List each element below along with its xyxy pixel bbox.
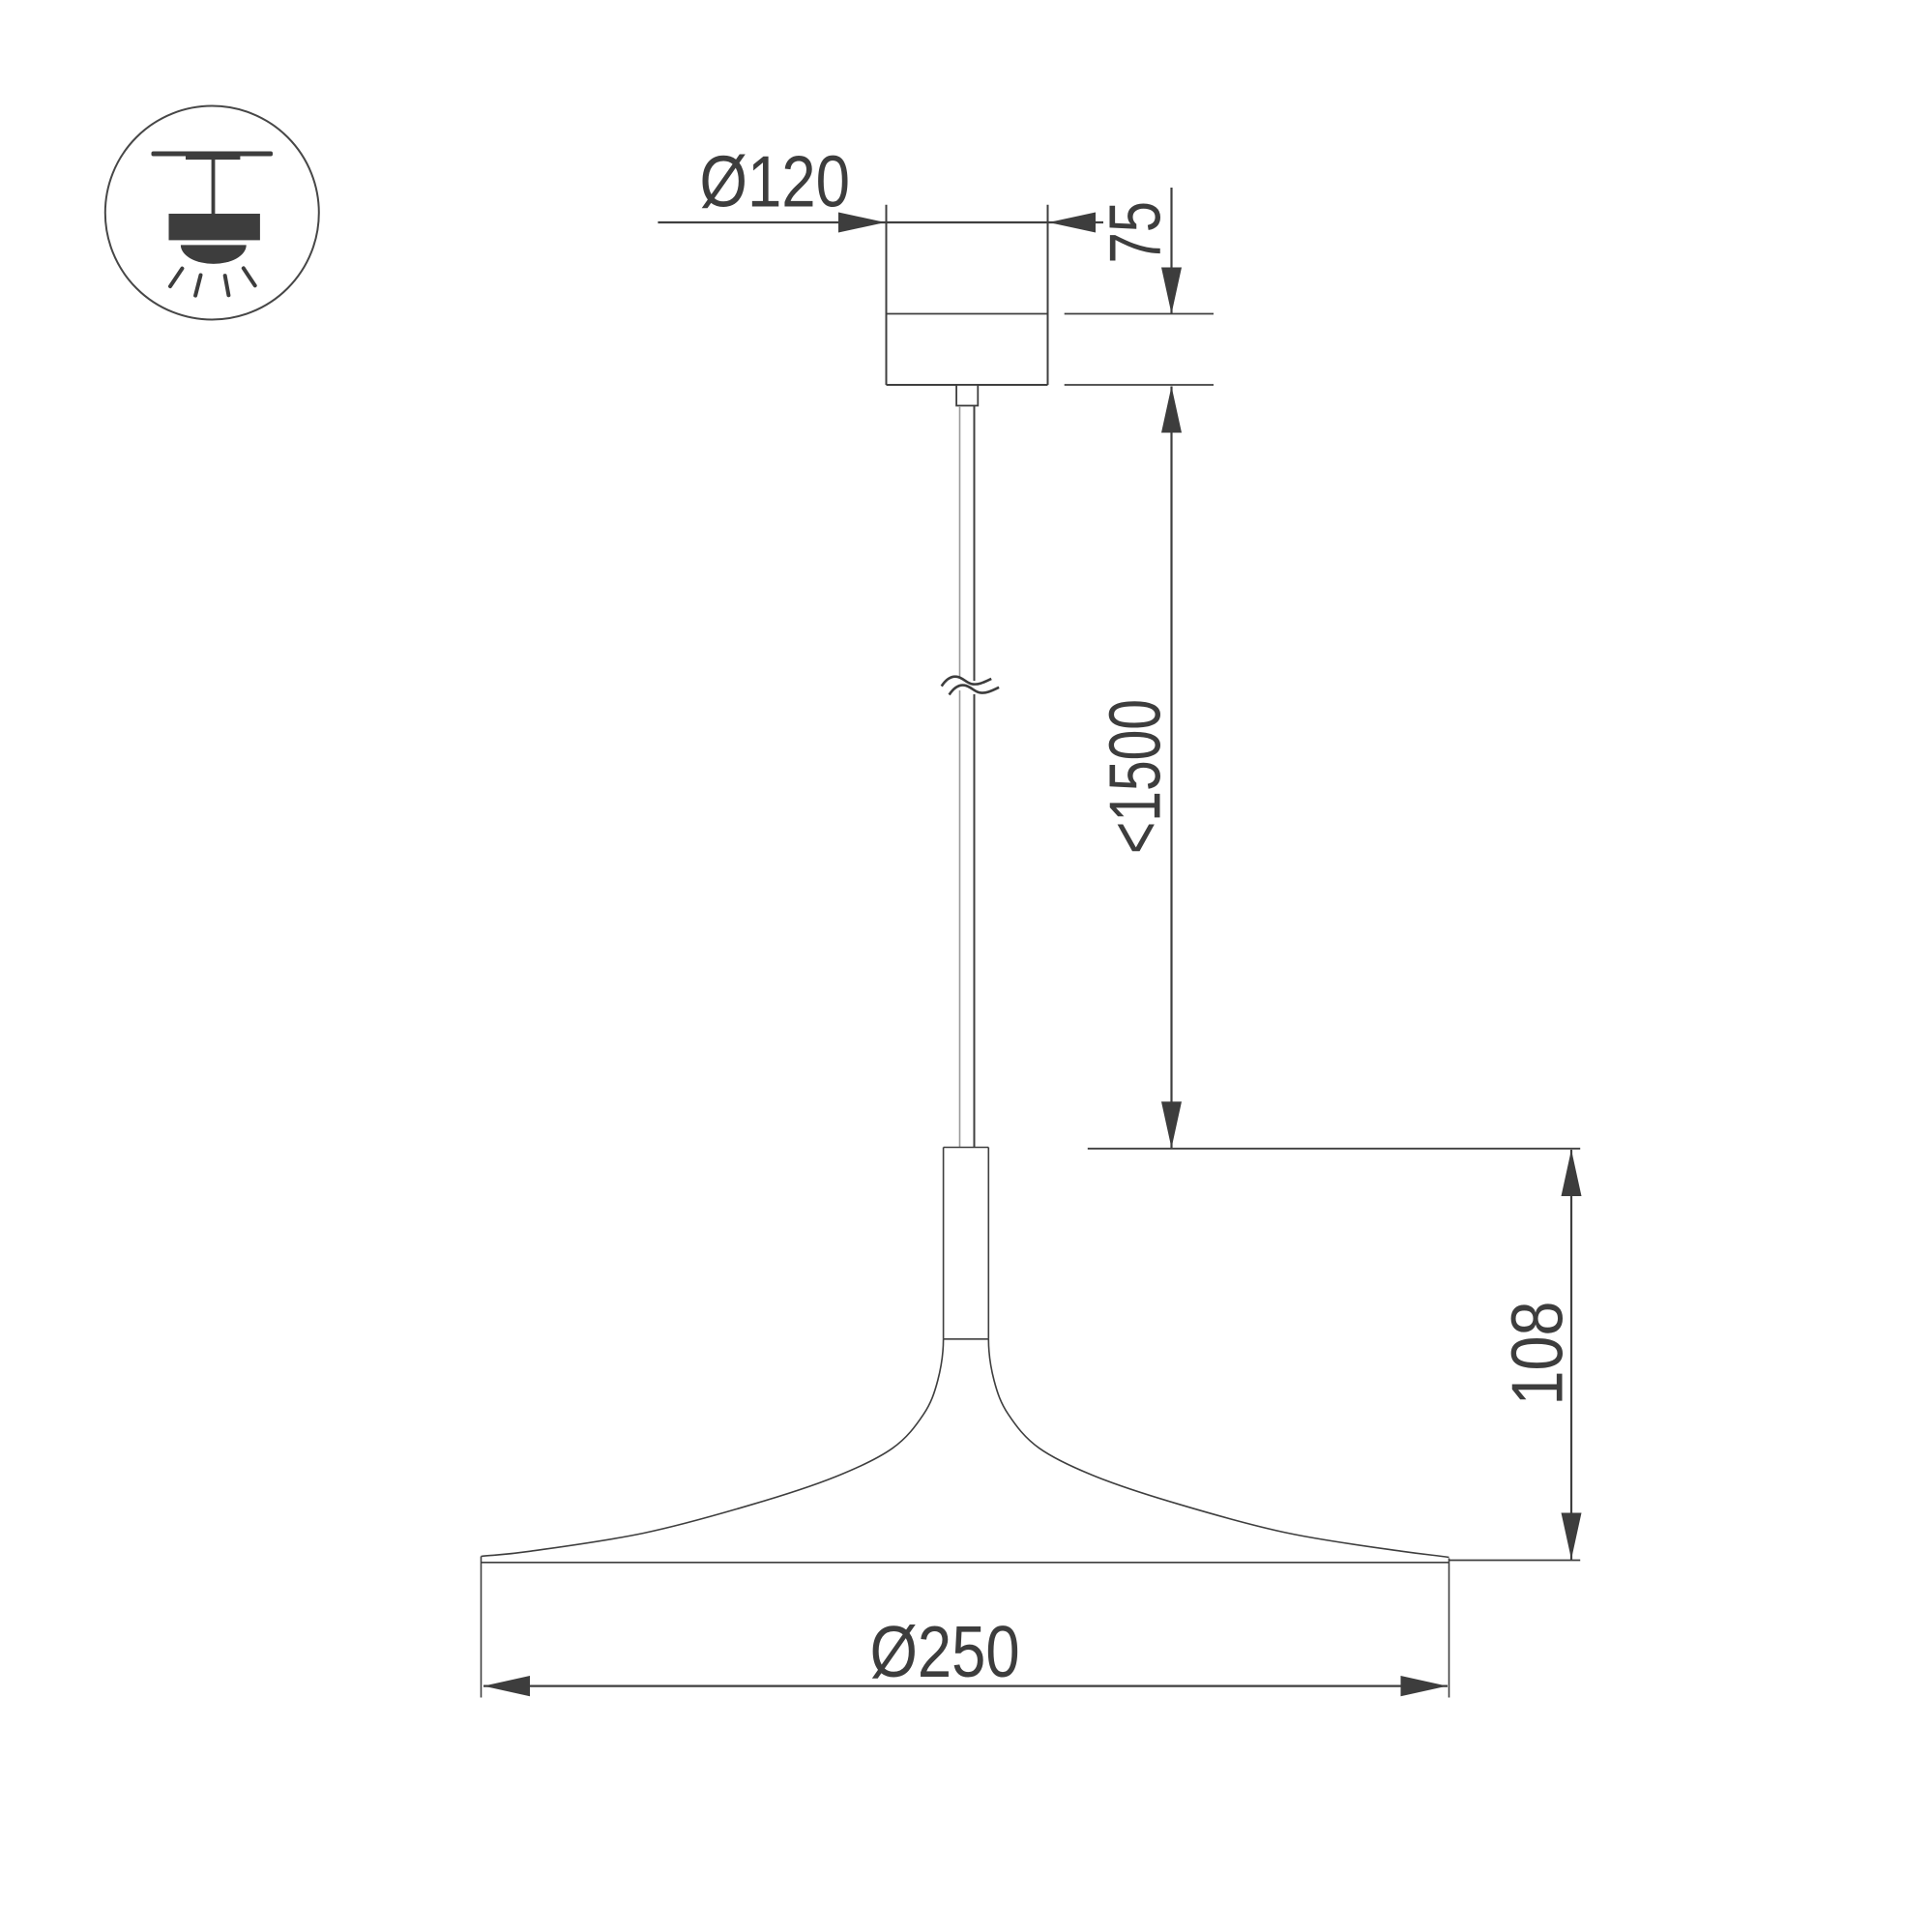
svg-text:108: 108 [1497, 1302, 1578, 1406]
svg-text:75: 75 [1094, 201, 1175, 264]
svg-text:Ø120: Ø120 [700, 140, 851, 221]
svg-text:<1500: <1500 [1094, 699, 1175, 854]
svg-text:Ø250: Ø250 [870, 1611, 1020, 1692]
